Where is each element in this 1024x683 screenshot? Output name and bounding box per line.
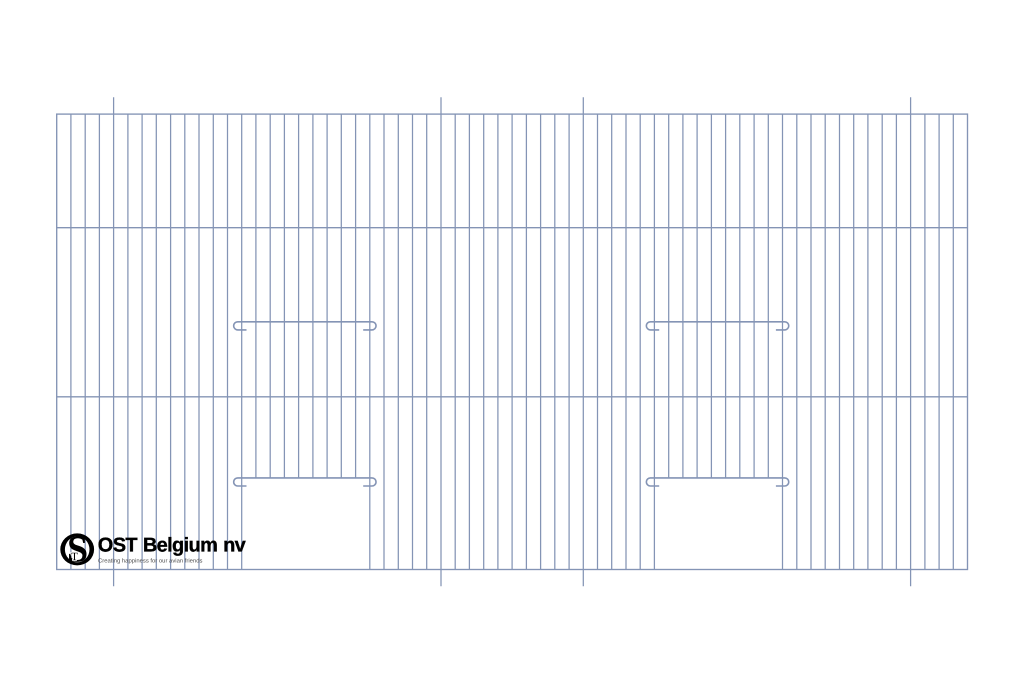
svg-text:Creating happiness for our avi: Creating happiness for our avian friends [98,557,203,564]
svg-text:OST Belgium nv: OST Belgium nv [98,534,247,556]
svg-text:S: S [67,528,88,570]
svg-text:T: T [71,551,78,563]
